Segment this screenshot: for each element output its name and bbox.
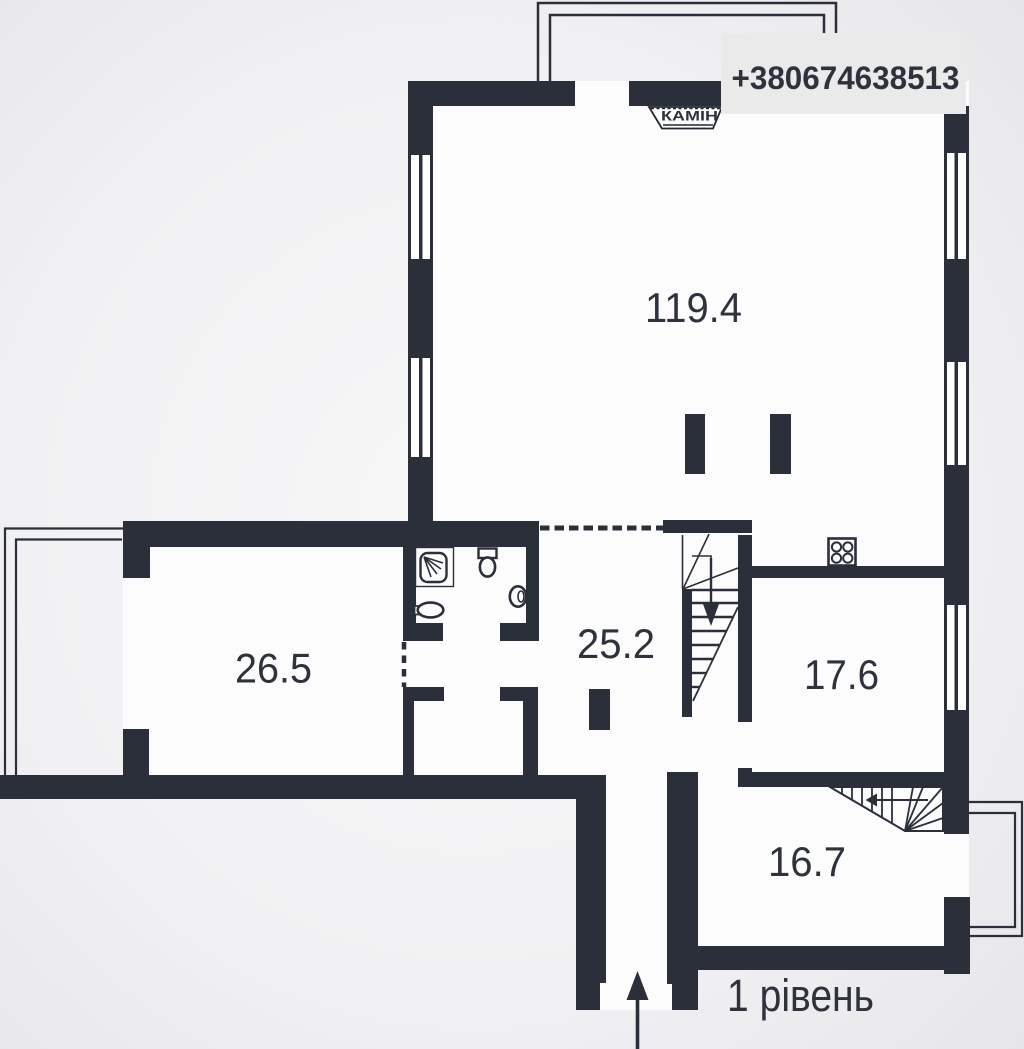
svg-text:+380674638513: +380674638513 [732, 60, 960, 96]
svg-text:17.6: 17.6 [804, 651, 879, 698]
svg-text:1 рівень: 1 рівень [727, 970, 874, 1021]
svg-text:25.2: 25.2 [577, 620, 655, 667]
svg-text:16.7: 16.7 [768, 838, 846, 885]
svg-text:26.5: 26.5 [235, 645, 312, 692]
svg-text:КАМІН: КАМІН [661, 109, 718, 124]
svg-text:119.4: 119.4 [645, 284, 742, 331]
